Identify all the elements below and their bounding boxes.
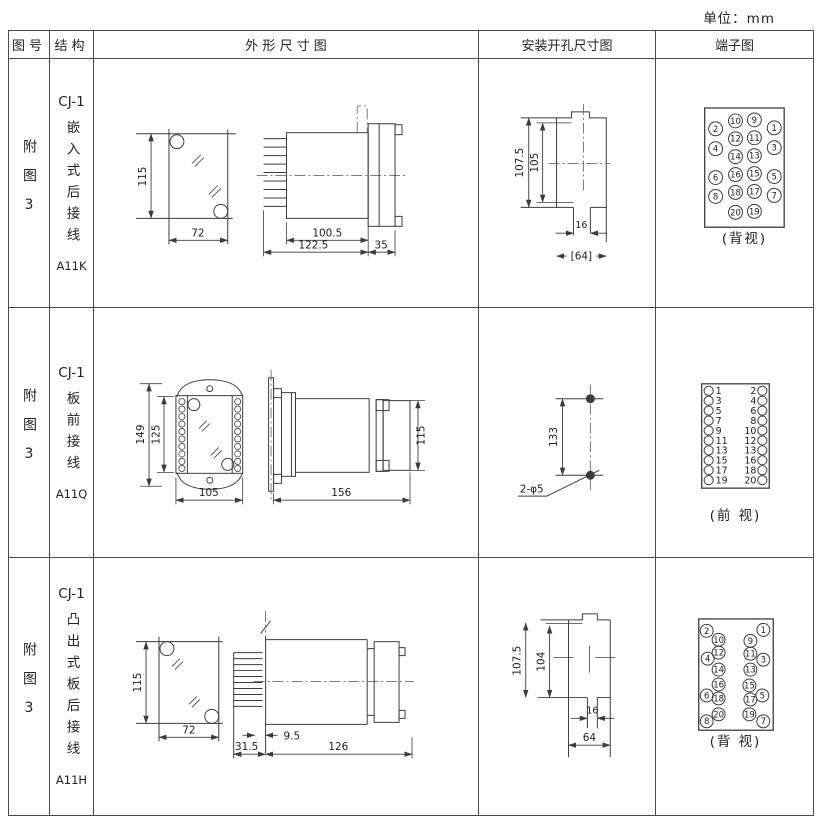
mounting-screw <box>188 399 200 411</box>
fig-no-cell-r3: 附图3 <box>9 558 50 816</box>
terminal-circle <box>704 426 713 435</box>
terminal-number: 19 <box>744 709 755 719</box>
glass-hatch <box>192 155 221 198</box>
terminal-number: 9 <box>748 636 753 646</box>
datasheet-page: 单位：mm 图号 结构 外 形 尺 寸 图 安装开孔尺寸图 端子图 附图3 CJ… <box>0 0 821 825</box>
outline-cell-r2: 149 125 105 115 156 <box>94 308 479 558</box>
dim-side-height: 115 <box>415 426 427 446</box>
terminal-caption-r3: (背 视) <box>710 734 761 750</box>
terminal-circle <box>704 406 713 415</box>
terminal-screw-columns <box>179 399 241 472</box>
terminal-svg-r3: (背 视) 2110912114314131615651817201987 <box>656 558 813 815</box>
terminal-circle <box>758 386 767 395</box>
fig-no-r1: 附图3 <box>19 139 39 228</box>
dim-gap: 9.5 <box>284 730 301 742</box>
side-view <box>234 611 414 758</box>
terminal-number: 4 <box>705 654 710 664</box>
dim-body-length: 126 <box>328 741 348 753</box>
dimensions: 115 72 100.5 122.5 35 <box>137 134 395 257</box>
dim-inner-v: 104 <box>536 651 548 671</box>
fig-no-cell-r2: 附图3 <box>9 308 50 558</box>
install-cell-r1: 107.5 105 16 [64] <box>479 59 656 308</box>
terminal-number: 18 <box>713 693 724 703</box>
side-view <box>257 106 408 227</box>
terminal-number: 6 <box>704 690 709 700</box>
terminal-number: 16 <box>713 679 724 689</box>
terminal-number: 14 <box>730 152 741 162</box>
dim-opening-w: [64] <box>571 251 592 263</box>
install-cell-r2: 133 2-φ5 <box>479 308 656 558</box>
terminal-number: 20 <box>730 207 741 217</box>
fig-no-r2: 附图3 <box>19 388 39 477</box>
terminal-pins <box>234 653 263 707</box>
centerlines <box>549 104 611 191</box>
terminal-caption-r1: (背视) <box>722 231 767 247</box>
terminal-number: 14 <box>713 665 724 675</box>
terminal-cell-r3: (背 视) 2110912114314131615651817201987 <box>656 558 814 816</box>
dimensions: 107.5 104 16 64 <box>511 623 614 745</box>
unit-note: 单位：mm <box>703 7 775 27</box>
terminal-number: 10 <box>713 635 724 645</box>
terminal-circle <box>704 476 713 485</box>
dim-body-length: 100.5 <box>312 227 342 239</box>
terminal-number: 17 <box>749 186 760 196</box>
structure-desc-r1: 嵌入式后接线 <box>62 120 82 249</box>
terminal-number: 12 <box>713 648 724 658</box>
terminal-cell-r2: (前 视) 1234567891011121313151617181920 <box>656 308 814 558</box>
terminal-svg-r1: (背视) 2109141211314136161558181772019 <box>656 59 813 307</box>
header-col-install: 安装开孔尺寸图 <box>479 31 656 59</box>
terminal-circle <box>758 466 767 475</box>
terminal-number: 19 <box>749 206 760 216</box>
outline-svg-r3: 115 72 9.5 31.5 126 <box>94 558 478 815</box>
model-label-r3: CJ-1 <box>58 586 84 602</box>
dim-opening-w: 64 <box>583 732 597 744</box>
terminal-number: 11 <box>745 649 756 659</box>
dim-front-height: 115 <box>137 167 149 187</box>
terminal-circle <box>758 426 767 435</box>
dim-inner-v: 105 <box>529 153 541 173</box>
dim-front-width: 105 <box>199 487 219 499</box>
dim-pin-length: 31.5 <box>235 741 258 753</box>
outline-cell-r3: 115 72 9.5 31.5 126 <box>94 558 479 816</box>
terminal-circle <box>758 416 767 425</box>
terminal-number: 19 <box>716 476 728 487</box>
terminal-number: 5 <box>772 172 777 182</box>
mounting-screw <box>205 709 219 723</box>
phantom-handle <box>357 106 367 133</box>
terminal-number: 2 <box>713 124 718 134</box>
terminal-circle <box>704 386 713 395</box>
terminal-circle <box>758 456 767 465</box>
front-view <box>136 637 223 742</box>
terminal-number: 16 <box>730 170 741 180</box>
terminal-circle <box>704 466 713 475</box>
dim-front-height: 115 <box>132 673 144 693</box>
model-label-r1: CJ-1 <box>58 94 84 110</box>
model-label-r2: CJ-1 <box>58 365 84 381</box>
hole-note: 2-φ5 <box>520 484 544 496</box>
terminal-number: 15 <box>744 680 755 690</box>
center-mark <box>554 646 616 673</box>
dim-slot-w: 16 <box>575 220 587 231</box>
terminal-number: 15 <box>749 169 760 179</box>
terminal-circle <box>758 396 767 405</box>
side-view <box>269 370 410 499</box>
terminal-circle <box>704 416 713 425</box>
mounting-screw <box>160 642 174 656</box>
fig-no-cell-r1: 附图3 <box>9 59 50 308</box>
terminal-number: 4 <box>713 144 718 154</box>
terminal-number: 8 <box>713 191 718 201</box>
dim-front-width: 72 <box>191 227 204 239</box>
dim-outer-v: 107.5 <box>511 646 523 676</box>
terminal-circle <box>704 396 713 405</box>
structure-desc-r2: 板前接线 <box>62 391 82 477</box>
terminal-number: 1 <box>772 123 777 133</box>
terminal-number: 12 <box>730 134 741 144</box>
dim-total-length: 122.5 <box>298 240 328 252</box>
terminal-circle <box>704 436 713 445</box>
terminal-pins <box>264 139 287 207</box>
terminal-number: 5 <box>760 690 765 700</box>
terminal-number: 20 <box>744 476 756 487</box>
model-code-r1: A11K <box>56 259 86 273</box>
spec-table: 图号 结构 外 形 尺 寸 图 安装开孔尺寸图 端子图 附图3 CJ-1 嵌入式… <box>8 30 814 816</box>
terminal-number: 10 <box>730 116 741 126</box>
dim-side-length: 156 <box>331 487 351 499</box>
terminal-number: 3 <box>772 143 777 153</box>
terminal-caption-r2: (前 视) <box>710 507 761 524</box>
dim-total-height: 149 <box>135 425 147 445</box>
terminal-circle <box>758 436 767 445</box>
terminal-circle <box>704 446 713 455</box>
structure-desc-r3: 凸出式板后接线 <box>62 612 82 763</box>
fig-no-r3: 附图3 <box>19 642 39 731</box>
model-code-r3: A11H <box>56 773 87 787</box>
mounting-screw <box>214 204 228 218</box>
terminal-number: 7 <box>772 190 777 200</box>
terminal-number: 7 <box>761 716 766 726</box>
terminal-box <box>702 384 770 488</box>
terminal-cell-r1: (背视) 2109141211314136161558181772019 <box>656 59 814 308</box>
terminal-number: 17 <box>745 694 756 704</box>
mounting-hole <box>586 395 594 403</box>
outline-svg-r2: 149 125 105 115 156 <box>94 308 478 557</box>
terminal-number: 1 <box>761 625 766 635</box>
front-view <box>176 380 243 490</box>
header-col-fig: 图号 <box>9 31 50 59</box>
dim-flange-th: 35 <box>374 240 387 252</box>
outline-svg-r1: 115 72 100.5 122.5 35 <box>94 59 478 307</box>
glass-hatch <box>199 421 222 459</box>
header-col-outline: 外 形 尺 寸 图 <box>94 31 479 59</box>
header-col-structure: 结构 <box>50 31 94 59</box>
terminal-circle <box>704 456 713 465</box>
terminal-number: 18 <box>730 187 741 197</box>
dim-slot-w: 16 <box>586 705 598 716</box>
dim-inner-height: 125 <box>151 425 163 445</box>
terminal-box <box>699 619 774 730</box>
terminal-number: 2 <box>704 626 709 636</box>
top-flange <box>177 380 243 397</box>
mounting-hole <box>586 471 594 479</box>
terminal-svg-r2: (前 视) 1234567891011121313151617181920 <box>656 308 813 557</box>
dim-hole-spacing: 133 <box>548 427 560 447</box>
terminal-number: 13 <box>749 151 760 161</box>
install-cell-r3: 107.5 104 16 64 <box>479 558 656 816</box>
terminal-number: 6 <box>713 173 718 183</box>
dimensions: 115 72 9.5 31.5 126 <box>132 642 412 759</box>
terminal-circle <box>758 446 767 455</box>
structure-cell-r2: CJ-1 板前接线 A11Q <box>50 308 94 558</box>
install-svg-r2: 133 2-φ5 <box>479 308 655 557</box>
terminal-number: 13 <box>745 665 756 675</box>
dimensions: 133 2-φ5 <box>518 399 600 496</box>
dim-outer-v: 107.5 <box>514 148 526 178</box>
terminal-number: 9 <box>752 115 757 125</box>
terminal-circle <box>758 476 767 485</box>
terminal-number: 11 <box>749 133 760 143</box>
install-svg-r3: 107.5 104 16 64 <box>479 558 655 815</box>
structure-cell-r3: CJ-1 凸出式板后接线 A11H <box>50 558 94 816</box>
terminal-number: 20 <box>713 709 724 719</box>
header-col-terminal: 端子图 <box>656 31 814 59</box>
model-code-r2: A11Q <box>56 487 88 501</box>
dim-front-width: 72 <box>182 724 195 736</box>
glass-hatch <box>172 659 200 708</box>
dimensions: 107.5 105 16 [64] <box>514 118 607 263</box>
terminal-number: 8 <box>704 716 709 726</box>
mounting-screw <box>170 135 184 149</box>
structure-cell-r1: CJ-1 嵌入式后接线 A11K <box>50 59 94 308</box>
outline-cell-r1: 115 72 100.5 122.5 35 <box>94 59 479 308</box>
terminal-circle <box>758 406 767 415</box>
cutout-outline <box>521 112 607 242</box>
install-svg-r1: 107.5 105 16 [64] <box>479 59 655 307</box>
terminal-number: 3 <box>761 655 766 665</box>
